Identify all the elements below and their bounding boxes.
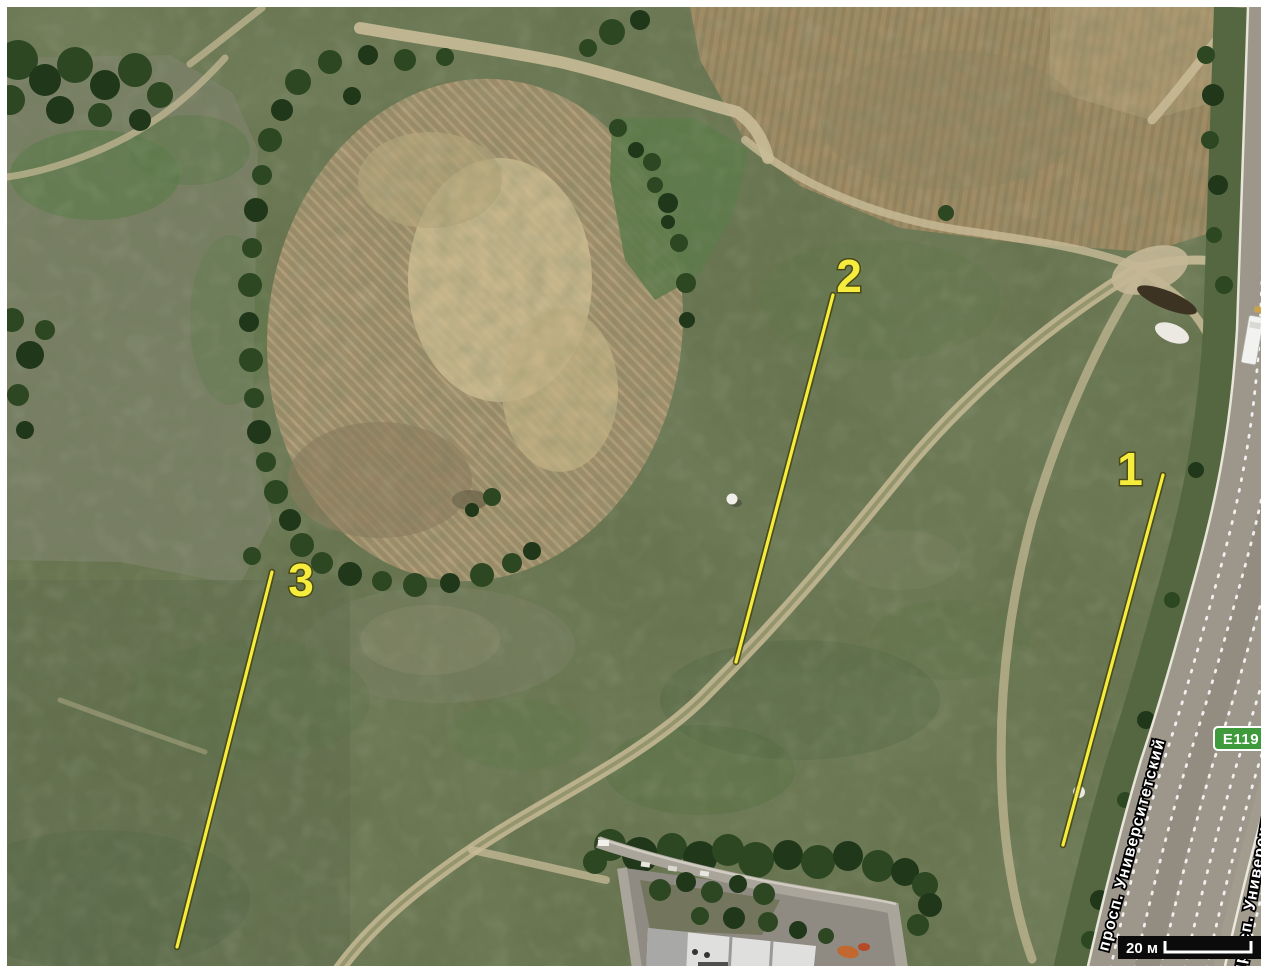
screenshot-page: 1 2 3 просп. Университетский просп. Унив… — [0, 0, 1268, 975]
scale-bar: 20 м — [1118, 936, 1261, 959]
scale-bar-label: 20 м — [1126, 940, 1158, 957]
route-badge: E119 — [1214, 727, 1261, 750]
satellite-map[interactable]: 1 2 3 просп. Университетский просп. Унив… — [7, 7, 1261, 966]
marker-label-3: 3 — [288, 554, 314, 606]
satellite-map-canvas: 1 2 3 просп. Университетский просп. Унив… — [7, 7, 1261, 966]
marker-label-1: 1 — [1117, 443, 1143, 495]
route-badge-text: E119 — [1223, 731, 1259, 748]
parked-car — [598, 840, 609, 846]
white-object-dot — [727, 494, 738, 505]
marker-label-2: 2 — [836, 250, 862, 302]
